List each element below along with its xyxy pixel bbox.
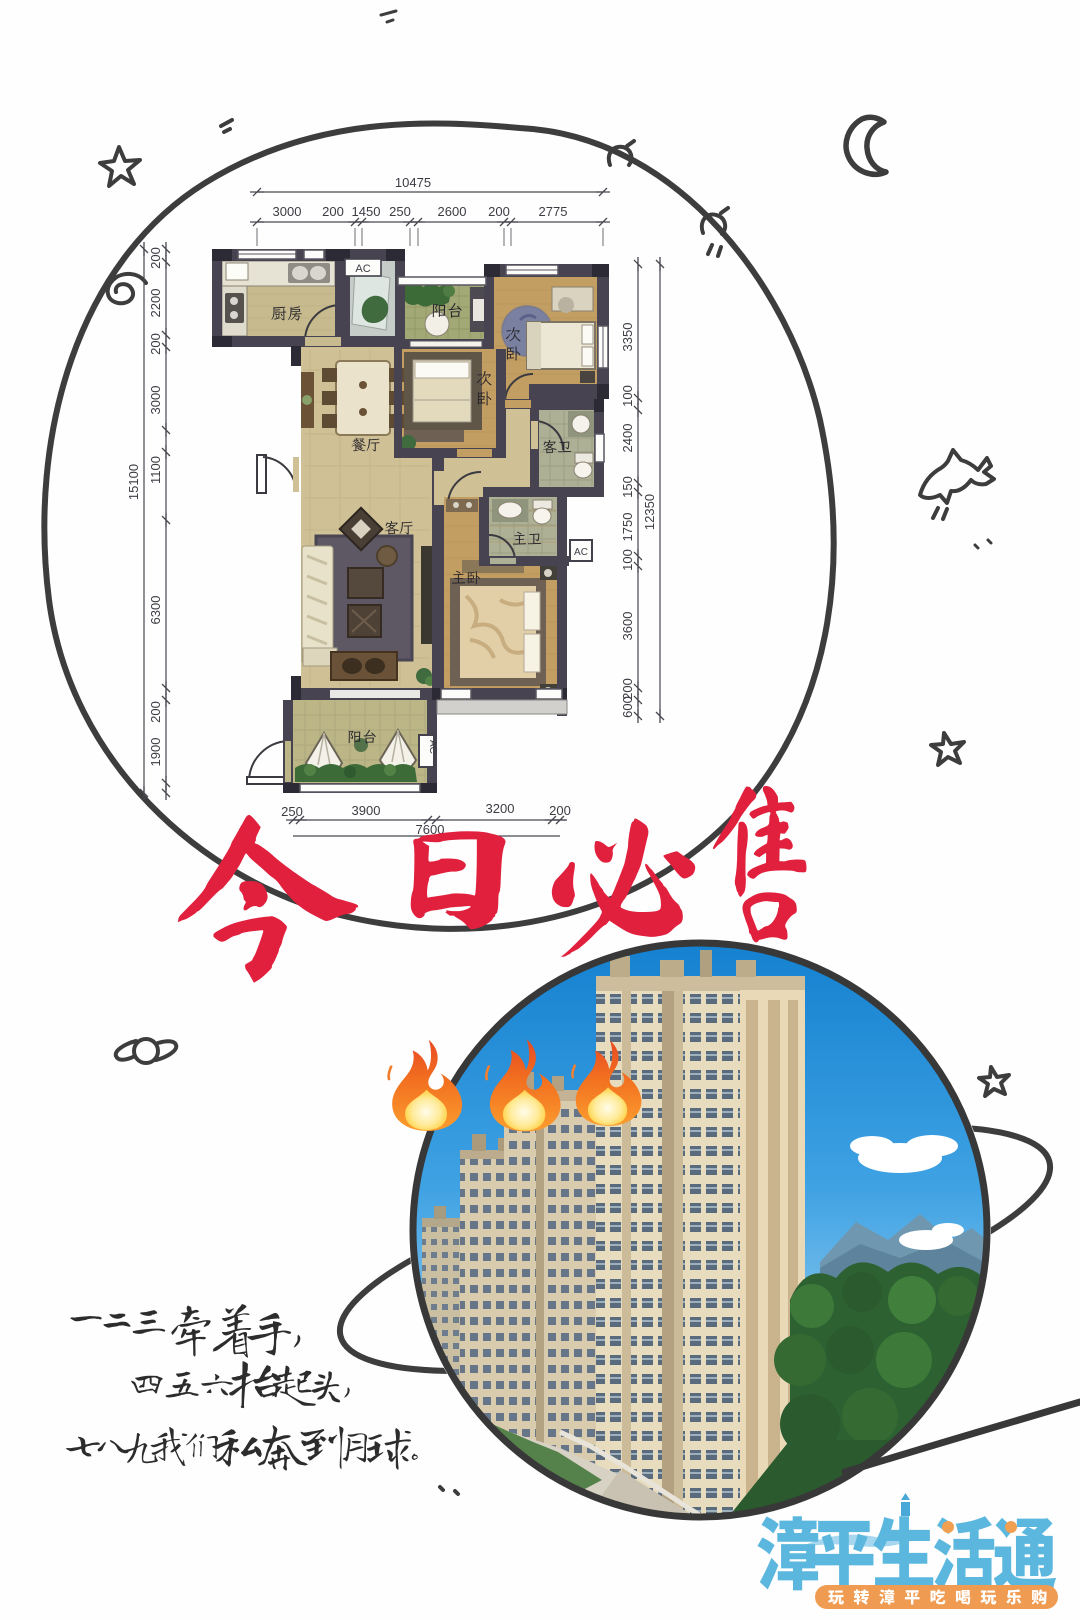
svg-text:200: 200 [322, 204, 344, 219]
svg-text:3350: 3350 [620, 323, 635, 352]
svg-text:12350: 12350 [642, 494, 657, 530]
svg-text:2600: 2600 [438, 204, 467, 219]
svg-text:10475: 10475 [395, 175, 431, 190]
svg-text:1450: 1450 [352, 204, 381, 219]
svg-text:3000: 3000 [273, 204, 302, 219]
svg-text:200: 200 [148, 333, 163, 355]
svg-text:200: 200 [148, 247, 163, 269]
svg-text:6300: 6300 [148, 596, 163, 625]
svg-text:1100: 1100 [148, 456, 163, 484]
svg-text:3000: 3000 [148, 386, 163, 415]
svg-text:100: 100 [620, 385, 635, 407]
svg-text:AC: AC [427, 740, 438, 754]
svg-text:600: 600 [620, 696, 635, 718]
svg-text:AC: AC [355, 263, 370, 275]
svg-text:15100: 15100 [126, 464, 141, 500]
svg-text:200: 200 [488, 204, 510, 219]
svg-text:2400: 2400 [620, 424, 635, 453]
svg-text:2775: 2775 [539, 204, 568, 219]
svg-text:3200: 3200 [486, 801, 515, 816]
svg-text:3900: 3900 [352, 803, 381, 818]
svg-text:250: 250 [389, 204, 411, 219]
svg-text:250: 250 [281, 804, 303, 819]
svg-text:100: 100 [620, 549, 635, 571]
svg-text:150: 150 [620, 476, 635, 498]
svg-text:200: 200 [549, 803, 571, 818]
svg-text:200: 200 [148, 701, 163, 723]
svg-text:2200: 2200 [148, 289, 163, 318]
svg-text:1900: 1900 [148, 738, 163, 767]
svg-text:1750: 1750 [620, 513, 635, 542]
svg-text:AC: AC [574, 547, 588, 558]
svg-text:3600: 3600 [620, 612, 635, 641]
